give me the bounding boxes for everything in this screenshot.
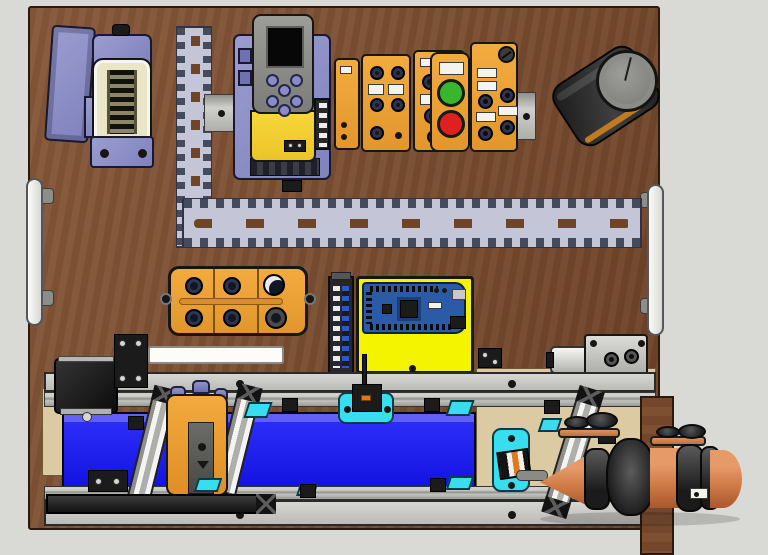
- vfd-keypad: [252, 14, 314, 114]
- duct-slots: [194, 219, 630, 228]
- vent-screw: [498, 46, 515, 63]
- workpiece-label: [690, 488, 708, 499]
- corner-bracket: [424, 398, 440, 412]
- screw: [138, 149, 147, 158]
- pin-header: [366, 292, 372, 324]
- m12-port: [185, 309, 203, 327]
- mount-ear: [304, 293, 316, 305]
- station-label: [439, 62, 464, 75]
- indicator: [198, 443, 206, 451]
- green-button: [437, 79, 465, 107]
- screw: [344, 406, 351, 413]
- screw: [113, 478, 120, 485]
- terminal-strip: [328, 276, 354, 378]
- m12-port: [500, 120, 515, 135]
- module-label: [388, 84, 404, 95]
- vfd-port: [238, 70, 252, 86]
- vfd-button: [266, 74, 279, 87]
- rotary-knob-unit: [558, 40, 670, 144]
- vfd-button: [278, 84, 291, 97]
- screw: [638, 340, 645, 347]
- horizontal-wiring-duct: [182, 198, 642, 248]
- belt-guide: [446, 476, 475, 490]
- dark-extrusion-bar: [46, 494, 276, 514]
- duct-teeth: [184, 238, 640, 247]
- capacitor: [442, 288, 447, 293]
- corner-bracket: [544, 400, 560, 414]
- vfd-terminals: [314, 98, 330, 150]
- m12-port: [265, 307, 287, 329]
- cylinder-rod-barrel: [550, 346, 586, 374]
- m12-port: [478, 126, 493, 141]
- m12-port: [370, 126, 384, 140]
- left-handle: [26, 178, 43, 326]
- terminal-row: [319, 103, 327, 147]
- screw: [508, 380, 516, 388]
- m12-port: [391, 66, 405, 80]
- module-label: [477, 68, 497, 78]
- vfd-pin: [288, 143, 293, 148]
- right-handle: [647, 184, 664, 336]
- m12-port: [478, 94, 493, 109]
- connector-base: [90, 136, 154, 168]
- air-port: [604, 352, 619, 367]
- usb-port: [452, 289, 466, 300]
- m12-port: [223, 277, 241, 295]
- mount-ear: [160, 293, 172, 305]
- io-module-1: [334, 58, 360, 150]
- screw-slot: [501, 51, 511, 59]
- screw: [119, 375, 126, 382]
- mount-bracket: [478, 348, 502, 368]
- controller-board: [362, 282, 466, 334]
- screw: [341, 134, 347, 140]
- m12-port-highlight: [263, 274, 285, 296]
- module-label: [368, 84, 384, 95]
- terminal-row: [333, 286, 340, 368]
- vfd-tab: [282, 180, 302, 192]
- air-port: [624, 349, 639, 364]
- screw: [590, 340, 597, 347]
- vfd-pin: [297, 143, 302, 148]
- rod-tip: [546, 352, 554, 368]
- screw: [341, 122, 347, 128]
- motor-plate: [58, 356, 114, 362]
- vfd-button: [278, 104, 291, 117]
- mcu-chip: [400, 300, 418, 318]
- terminal-row: [342, 286, 349, 368]
- io-module-2: [361, 54, 411, 152]
- knob-face: [596, 50, 658, 112]
- rail-hole: [523, 113, 530, 120]
- strip-cap: [331, 272, 351, 280]
- belt-highlight: [64, 414, 474, 422]
- vfd-button: [266, 95, 279, 108]
- m12-junction-box: [168, 266, 308, 336]
- m12-port: [370, 66, 384, 80]
- io-module-4: [470, 42, 518, 152]
- extrusion-end: [256, 494, 276, 514]
- valve-cap: [192, 380, 210, 394]
- din-rail-segment: [516, 92, 536, 140]
- screw: [95, 478, 102, 485]
- duct-teeth: [184, 199, 640, 208]
- stand-plate: [558, 428, 620, 438]
- support-stand: [586, 412, 618, 429]
- m12-port: [500, 88, 515, 103]
- support-stand: [678, 424, 706, 439]
- m12-port: [185, 277, 203, 295]
- bracket-cluster: [88, 470, 128, 492]
- workpiece-rod: [516, 470, 548, 481]
- cone-torus-band: [606, 438, 656, 516]
- screw: [135, 340, 142, 347]
- support-stand: [656, 426, 680, 438]
- module-label: [476, 112, 496, 122]
- screw: [508, 435, 515, 442]
- connector-cable-stub: [112, 24, 130, 36]
- module-label: [340, 66, 352, 74]
- power-jack: [450, 316, 466, 329]
- corner-bracket: [128, 416, 144, 430]
- capacitor: [434, 288, 439, 293]
- overhead-sensor: [352, 384, 382, 412]
- sensor-led: [361, 395, 371, 401]
- pin-header: [370, 324, 454, 330]
- vfd-button: [290, 95, 303, 108]
- screw: [135, 375, 142, 382]
- screw: [492, 359, 498, 365]
- chip: [382, 304, 392, 314]
- screw: [384, 406, 391, 413]
- screw: [482, 352, 488, 358]
- rail-hole: [218, 110, 225, 117]
- label-dot: [694, 492, 699, 497]
- m12-port: [223, 309, 241, 327]
- vfd-button: [290, 74, 303, 87]
- center-ridge: [179, 298, 283, 305]
- connector-pins: [107, 70, 137, 134]
- belt-guide: [194, 478, 223, 492]
- vfd-body: [250, 110, 316, 162]
- clamp-stack: [114, 334, 148, 388]
- m12-port: [370, 98, 384, 112]
- screw: [409, 365, 416, 372]
- screw: [395, 132, 402, 139]
- screw: [119, 340, 126, 347]
- arrow-mark: [197, 461, 209, 469]
- knob-pointer: [624, 57, 632, 81]
- screw: [100, 149, 109, 158]
- vfd-display: [266, 26, 304, 68]
- motor-shaft: [82, 412, 92, 422]
- heavy-duty-connector: [94, 60, 150, 144]
- stepper-motor: [54, 358, 118, 414]
- screw: [508, 511, 516, 519]
- module-label: [477, 81, 497, 91]
- corner-bracket: [282, 398, 298, 412]
- board-label: [428, 302, 442, 309]
- pin-header: [370, 286, 438, 292]
- red-button: [437, 110, 465, 138]
- vfd-port: [238, 48, 252, 64]
- white-bar: [148, 346, 284, 364]
- corner-bracket: [430, 478, 446, 492]
- dome-cap: [710, 450, 742, 508]
- pushbutton-station: [430, 52, 470, 152]
- cad-render-stage: [0, 0, 768, 555]
- m12-port: [391, 98, 405, 112]
- module-label: [498, 106, 518, 116]
- corner-bracket: [300, 484, 316, 498]
- screw: [508, 482, 515, 489]
